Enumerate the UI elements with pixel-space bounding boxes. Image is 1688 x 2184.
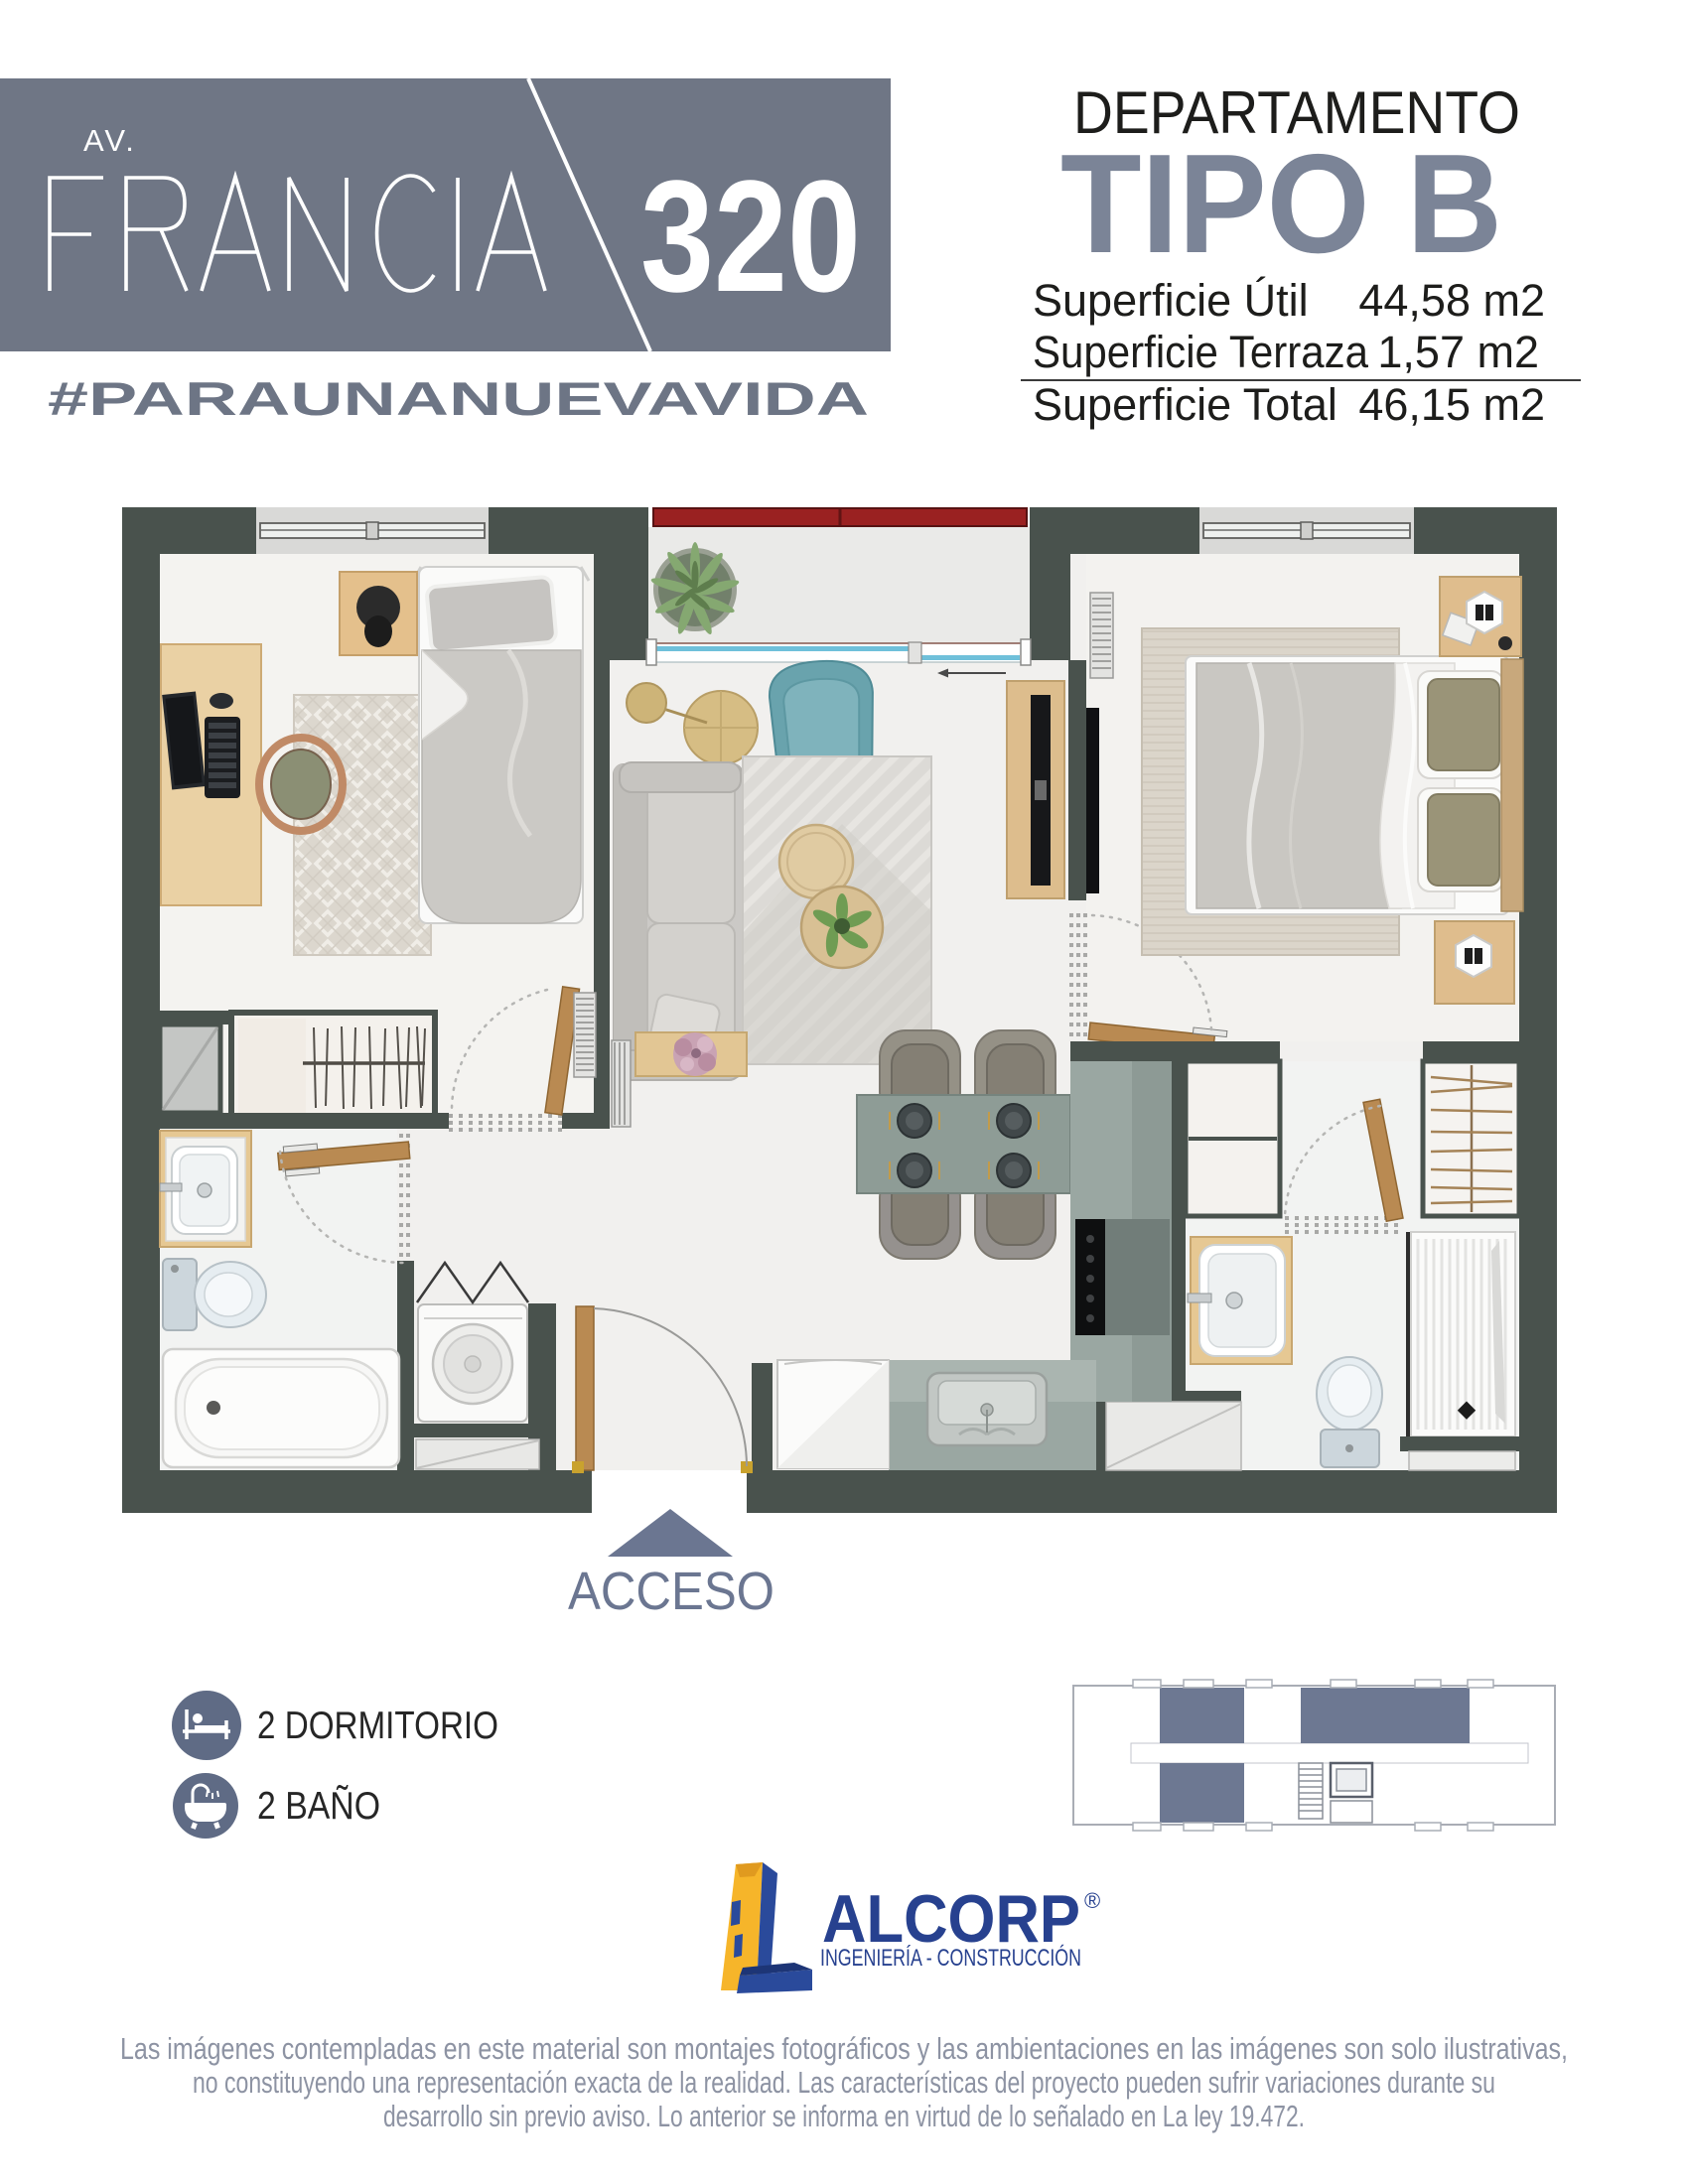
svg-text:AV.: AV. (83, 123, 137, 158)
svg-text:#PARAUNANUEVAVIDA: #PARAUNANUEVAVIDA (48, 372, 869, 425)
svg-text:46,15 m2: 46,15 m2 (1358, 379, 1545, 430)
svg-text:2 BAÑO: 2 BAÑO (257, 1785, 380, 1828)
svg-text:®: ® (1084, 1888, 1100, 1913)
svg-text:320: 320 (640, 147, 861, 325)
svg-text:Las imágenes contempladas en e: Las imágenes contempladas en este materi… (120, 2031, 1568, 2066)
svg-text:1,57 m2: 1,57 m2 (1377, 327, 1539, 377)
svg-text:Superficie Total: Superficie Total (1033, 379, 1337, 430)
svg-text:INGENIERÍA - CONSTRUCCIÓN: INGENIERÍA - CONSTRUCCIÓN (820, 1945, 1081, 1972)
svg-text:desarrollo sin previo aviso. L: desarrollo sin previo aviso. Lo anterior… (383, 2099, 1305, 2133)
svg-text:no constituyendo una represent: no constituyendo una representación exac… (193, 2065, 1495, 2100)
svg-text:44,58 m2: 44,58 m2 (1358, 275, 1545, 326)
svg-text:ACCESO: ACCESO (568, 1562, 774, 1621)
svg-text:Superficie Útil: Superficie Útil (1033, 275, 1309, 326)
svg-text:Superficie Terraza: Superficie Terraza (1033, 327, 1369, 377)
svg-text:2 DORMITORIO: 2 DORMITORIO (257, 1705, 498, 1747)
svg-text:TIPO B: TIPO B (1060, 125, 1502, 283)
